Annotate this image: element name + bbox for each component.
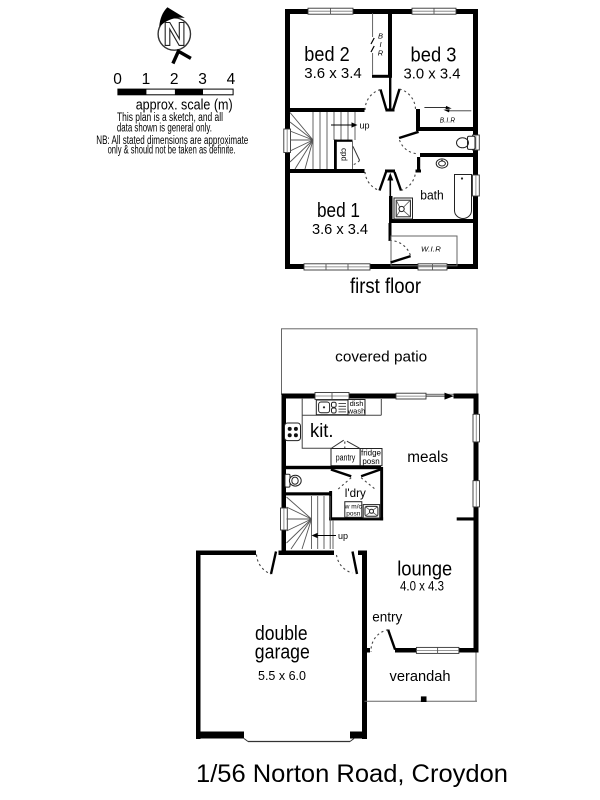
svg-text:3: 3 (198, 71, 207, 88)
svg-text:up: up (360, 121, 370, 131)
svg-text:bed 1: bed 1 (317, 200, 360, 222)
svg-text:0: 0 (113, 71, 122, 88)
svg-text:1: 1 (142, 71, 151, 88)
svg-text:approx. scale (m): approx. scale (m) (136, 97, 233, 114)
svg-text:pantry: pantry (336, 453, 356, 463)
svg-text:5.5 x 6.0: 5.5 x 6.0 (258, 668, 306, 683)
svg-text:w m/c: w m/c (344, 504, 363, 511)
svg-text:l'dry: l'dry (345, 486, 366, 500)
svg-text:W.I.R: W.I.R (421, 244, 441, 253)
svg-text:meals: meals (407, 449, 448, 466)
svg-text:3.6 x 3.4: 3.6 x 3.4 (312, 221, 368, 238)
svg-text:lounge: lounge (397, 559, 452, 581)
svg-text:3.6 x 3.4: 3.6 x 3.4 (304, 65, 361, 82)
svg-text:1/56 Norton Road, Croydon: 1/56 Norton Road, Croydon (196, 760, 508, 788)
svg-text:B.I.R: B.I.R (440, 117, 456, 124)
svg-text:wash: wash (347, 407, 366, 416)
svg-text:bed 3: bed 3 (411, 45, 457, 67)
svg-text:garage: garage (255, 642, 310, 664)
svg-text:up: up (338, 531, 348, 541)
svg-text:data shown is general only.: data shown is general only. (117, 123, 212, 135)
svg-text:posn: posn (362, 457, 379, 466)
svg-text:4: 4 (227, 71, 236, 88)
svg-text:covered patio: covered patio (335, 349, 427, 366)
svg-text:4.0 x 4.3: 4.0 x 4.3 (400, 579, 444, 594)
svg-text:R: R (378, 49, 384, 58)
svg-text:posn: posn (346, 511, 360, 518)
svg-text:first floor: first floor (350, 275, 421, 298)
svg-text:kit.: kit. (310, 421, 334, 442)
svg-text:verandah: verandah (390, 668, 451, 685)
svg-text:3.0 x 3.4: 3.0 x 3.4 (404, 66, 461, 83)
svg-text:bed 2: bed 2 (304, 44, 349, 66)
svg-text:2: 2 (170, 71, 179, 88)
svg-text:only & should not be taken as: only & should not be taken as definite. (108, 145, 236, 157)
svg-text:entry: entry (372, 610, 402, 625)
svg-text:bath: bath (420, 188, 444, 203)
svg-text:cpd: cpd (340, 148, 349, 161)
